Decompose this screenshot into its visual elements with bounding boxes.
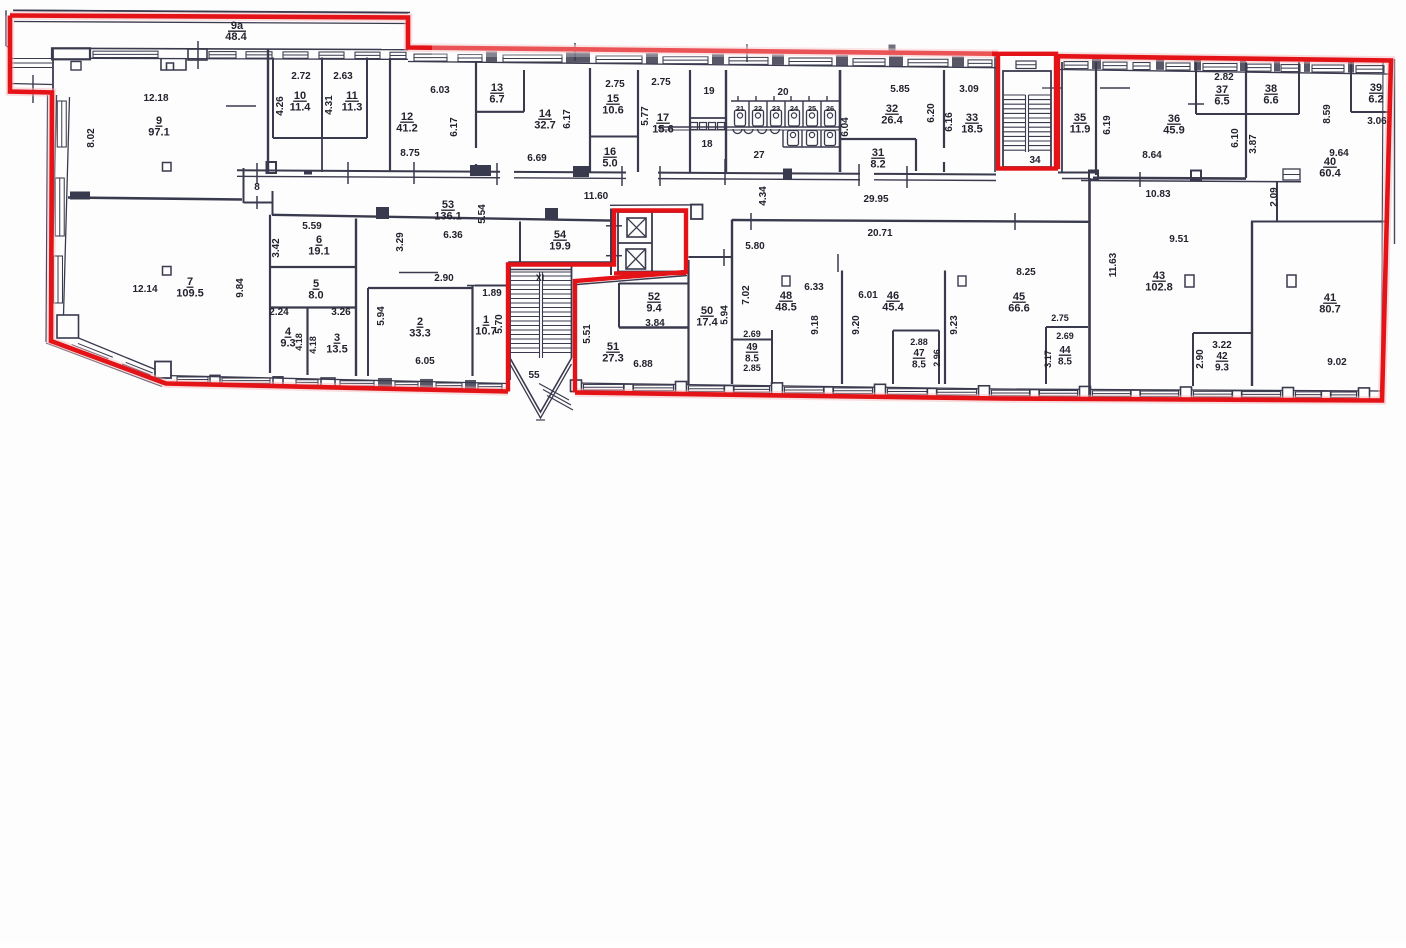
svg-text:7.02: 7.02 bbox=[741, 285, 752, 305]
svg-text:29.95: 29.95 bbox=[863, 194, 888, 205]
svg-text:6: 6 bbox=[316, 234, 322, 246]
svg-text:54: 54 bbox=[554, 229, 567, 241]
svg-text:9: 9 bbox=[156, 115, 162, 127]
svg-text:2.75: 2.75 bbox=[605, 79, 625, 90]
svg-text:20.71: 20.71 bbox=[867, 228, 892, 239]
svg-text:33: 33 bbox=[966, 112, 978, 124]
svg-text:42: 42 bbox=[1216, 351, 1228, 362]
svg-text:9.20: 9.20 bbox=[851, 315, 862, 335]
svg-text:6.20: 6.20 bbox=[926, 103, 937, 123]
svg-text:41.2: 41.2 bbox=[396, 123, 417, 135]
svg-text:8: 8 bbox=[254, 182, 260, 193]
svg-text:6.5: 6.5 bbox=[1214, 96, 1229, 108]
svg-text:2.75: 2.75 bbox=[651, 77, 671, 88]
svg-text:3.26: 3.26 bbox=[331, 307, 351, 318]
svg-text:2.75: 2.75 bbox=[1051, 313, 1069, 323]
svg-text:15.6: 15.6 bbox=[652, 124, 673, 136]
svg-text:9.4: 9.4 bbox=[646, 303, 662, 315]
svg-text:5.94: 5.94 bbox=[720, 305, 731, 325]
svg-text:48.4: 48.4 bbox=[225, 31, 247, 43]
svg-text:45.9: 45.9 bbox=[1163, 125, 1184, 137]
svg-text:2.63: 2.63 bbox=[333, 71, 353, 82]
svg-text:102.8: 102.8 bbox=[1145, 282, 1173, 294]
svg-text:9.51: 9.51 bbox=[1169, 234, 1189, 245]
svg-text:5.85: 5.85 bbox=[890, 84, 910, 95]
svg-text:20: 20 bbox=[777, 87, 789, 98]
svg-text:16: 16 bbox=[604, 146, 616, 158]
svg-text:38: 38 bbox=[1265, 83, 1277, 95]
svg-text:10.6: 10.6 bbox=[602, 105, 623, 117]
svg-text:55: 55 bbox=[528, 370, 540, 381]
svg-text:2.96: 2.96 bbox=[932, 349, 942, 367]
svg-text:2.24: 2.24 bbox=[269, 307, 289, 318]
svg-text:45.4: 45.4 bbox=[882, 302, 904, 314]
svg-text:9.23: 9.23 bbox=[949, 315, 960, 335]
svg-text:45: 45 bbox=[1013, 291, 1025, 303]
svg-text:6.10: 6.10 bbox=[1230, 128, 1241, 148]
svg-text:18.5: 18.5 bbox=[961, 124, 982, 136]
svg-text:5.51: 5.51 bbox=[582, 324, 593, 344]
svg-text:9.3: 9.3 bbox=[1215, 363, 1229, 374]
svg-text:12.18: 12.18 bbox=[143, 93, 168, 104]
svg-text:2.69: 2.69 bbox=[1056, 331, 1074, 341]
svg-text:53: 53 bbox=[442, 199, 454, 211]
svg-text:136.1: 136.1 bbox=[434, 211, 462, 223]
svg-text:XI: XI bbox=[536, 273, 545, 283]
svg-text:6.33: 6.33 bbox=[804, 282, 824, 293]
svg-text:23: 23 bbox=[772, 104, 780, 113]
svg-text:8.59: 8.59 bbox=[1322, 104, 1333, 124]
svg-text:41: 41 bbox=[1324, 292, 1336, 304]
svg-text:5.80: 5.80 bbox=[745, 241, 765, 252]
svg-text:6.69: 6.69 bbox=[527, 153, 547, 164]
svg-text:17: 17 bbox=[657, 112, 669, 124]
svg-text:8.5: 8.5 bbox=[1058, 357, 1072, 368]
svg-text:4: 4 bbox=[285, 326, 292, 338]
svg-text:2.90: 2.90 bbox=[1195, 349, 1206, 369]
svg-text:9.64: 9.64 bbox=[1329, 148, 1349, 159]
svg-text:6.01: 6.01 bbox=[858, 290, 878, 301]
svg-text:32: 32 bbox=[886, 103, 898, 115]
svg-text:3.84: 3.84 bbox=[645, 318, 665, 329]
svg-text:4.31: 4.31 bbox=[324, 95, 335, 115]
svg-text:25: 25 bbox=[808, 104, 816, 113]
svg-text:11: 11 bbox=[346, 90, 358, 102]
svg-text:1.89: 1.89 bbox=[482, 288, 502, 299]
svg-text:6.03: 6.03 bbox=[430, 85, 450, 96]
svg-text:8.25: 8.25 bbox=[1016, 267, 1036, 278]
svg-text:52: 52 bbox=[648, 291, 660, 303]
svg-text:48: 48 bbox=[780, 290, 792, 302]
svg-text:6.19: 6.19 bbox=[1102, 115, 1113, 135]
svg-text:21: 21 bbox=[736, 104, 744, 113]
svg-text:3.17: 3.17 bbox=[1043, 350, 1053, 368]
svg-text:5.0: 5.0 bbox=[602, 158, 617, 170]
svg-text:27.3: 27.3 bbox=[602, 353, 623, 365]
svg-text:8.64: 8.64 bbox=[1142, 150, 1162, 161]
svg-text:14: 14 bbox=[539, 108, 552, 120]
svg-text:5.59: 5.59 bbox=[302, 221, 322, 232]
svg-text:17.4: 17.4 bbox=[696, 317, 718, 329]
svg-text:6.7: 6.7 bbox=[489, 94, 504, 106]
svg-text:4.34: 4.34 bbox=[758, 186, 769, 206]
svg-text:26.4: 26.4 bbox=[881, 115, 903, 127]
svg-text:3.06: 3.06 bbox=[1367, 116, 1387, 127]
svg-text:3.42: 3.42 bbox=[271, 238, 282, 258]
svg-text:12.14: 12.14 bbox=[132, 284, 157, 295]
svg-text:6.16: 6.16 bbox=[944, 112, 955, 132]
svg-text:13: 13 bbox=[491, 82, 503, 94]
svg-text:4.18: 4.18 bbox=[308, 336, 318, 354]
svg-text:6.05: 6.05 bbox=[415, 356, 435, 367]
svg-text:46: 46 bbox=[887, 290, 899, 302]
svg-text:8.2: 8.2 bbox=[870, 159, 885, 171]
svg-text:37: 37 bbox=[1216, 84, 1228, 96]
svg-text:5.77: 5.77 bbox=[640, 106, 651, 126]
svg-text:2.90: 2.90 bbox=[434, 273, 454, 284]
svg-text:5.70: 5.70 bbox=[494, 314, 505, 334]
svg-text:39: 39 bbox=[1370, 82, 1382, 94]
svg-text:1: 1 bbox=[483, 314, 489, 326]
svg-text:49: 49 bbox=[746, 342, 758, 353]
svg-text:43: 43 bbox=[1153, 270, 1165, 282]
svg-text:31: 31 bbox=[872, 147, 884, 159]
svg-text:8.0: 8.0 bbox=[308, 290, 323, 302]
svg-text:97.1: 97.1 bbox=[148, 127, 169, 139]
svg-text:4.26: 4.26 bbox=[275, 96, 286, 116]
svg-text:66.6: 66.6 bbox=[1008, 303, 1029, 315]
svg-text:8.02: 8.02 bbox=[86, 128, 97, 148]
svg-text:2.82: 2.82 bbox=[1214, 72, 1234, 83]
svg-text:51: 51 bbox=[607, 341, 619, 353]
svg-text:5.94: 5.94 bbox=[376, 306, 387, 326]
svg-text:44: 44 bbox=[1059, 345, 1071, 356]
svg-text:60.4: 60.4 bbox=[1319, 168, 1341, 180]
svg-text:8.5: 8.5 bbox=[912, 360, 926, 371]
svg-text:6.88: 6.88 bbox=[633, 359, 653, 370]
svg-text:11.60: 11.60 bbox=[584, 191, 609, 202]
svg-text:11.63: 11.63 bbox=[1108, 252, 1119, 277]
svg-text:11.3: 11.3 bbox=[342, 102, 363, 114]
svg-text:19: 19 bbox=[703, 86, 715, 97]
svg-text:3.09: 3.09 bbox=[959, 84, 979, 95]
svg-text:11.9: 11.9 bbox=[1070, 124, 1091, 136]
svg-text:6.36: 6.36 bbox=[443, 230, 463, 241]
svg-text:34: 34 bbox=[1029, 155, 1041, 166]
svg-text:2.85: 2.85 bbox=[743, 363, 761, 373]
svg-text:6.17: 6.17 bbox=[449, 117, 460, 137]
svg-text:12: 12 bbox=[401, 111, 413, 123]
svg-text:6.17: 6.17 bbox=[562, 109, 573, 129]
svg-text:6.2: 6.2 bbox=[1368, 94, 1383, 106]
svg-text:19.1: 19.1 bbox=[308, 246, 329, 258]
svg-text:10.83: 10.83 bbox=[1145, 189, 1170, 200]
svg-text:3: 3 bbox=[334, 332, 340, 344]
svg-text:2.88: 2.88 bbox=[910, 337, 928, 347]
svg-text:3.22: 3.22 bbox=[1212, 340, 1232, 351]
svg-text:13.5: 13.5 bbox=[326, 344, 347, 356]
svg-text:2.72: 2.72 bbox=[291, 71, 311, 82]
svg-text:27: 27 bbox=[753, 150, 765, 161]
svg-text:5: 5 bbox=[313, 278, 319, 290]
svg-text:19.9: 19.9 bbox=[549, 241, 570, 253]
svg-text:26: 26 bbox=[826, 104, 834, 113]
svg-text:5.54: 5.54 bbox=[477, 204, 488, 224]
svg-text:6.04: 6.04 bbox=[840, 117, 851, 137]
svg-text:4.18: 4.18 bbox=[294, 333, 304, 351]
svg-text:24: 24 bbox=[790, 104, 799, 113]
svg-text:7: 7 bbox=[187, 276, 193, 288]
svg-text:2.69: 2.69 bbox=[743, 329, 761, 339]
svg-text:9.84: 9.84 bbox=[235, 278, 246, 298]
svg-text:80.7: 80.7 bbox=[1319, 304, 1340, 316]
svg-text:2.09: 2.09 bbox=[1269, 187, 1280, 207]
svg-text:3.87: 3.87 bbox=[1248, 134, 1259, 154]
svg-text:9.02: 9.02 bbox=[1327, 357, 1347, 368]
svg-text:3.29: 3.29 bbox=[395, 232, 406, 252]
svg-text:33.3: 33.3 bbox=[409, 328, 430, 340]
svg-text:36: 36 bbox=[1168, 113, 1180, 125]
svg-text:2: 2 bbox=[417, 316, 423, 328]
svg-text:10: 10 bbox=[294, 90, 306, 102]
svg-text:11.4: 11.4 bbox=[290, 102, 312, 114]
svg-text:32.7: 32.7 bbox=[534, 120, 555, 132]
svg-text:47: 47 bbox=[913, 348, 925, 359]
svg-text:15: 15 bbox=[607, 93, 619, 105]
svg-text:18: 18 bbox=[701, 139, 713, 150]
svg-text:8.75: 8.75 bbox=[400, 148, 420, 159]
svg-text:48.5: 48.5 bbox=[775, 302, 796, 314]
svg-text:9.18: 9.18 bbox=[810, 315, 821, 335]
svg-text:6.6: 6.6 bbox=[1263, 95, 1278, 107]
svg-text:35: 35 bbox=[1074, 112, 1086, 124]
svg-text:109.5: 109.5 bbox=[176, 288, 204, 300]
svg-text:22: 22 bbox=[754, 104, 762, 113]
svg-text:50: 50 bbox=[701, 305, 713, 317]
